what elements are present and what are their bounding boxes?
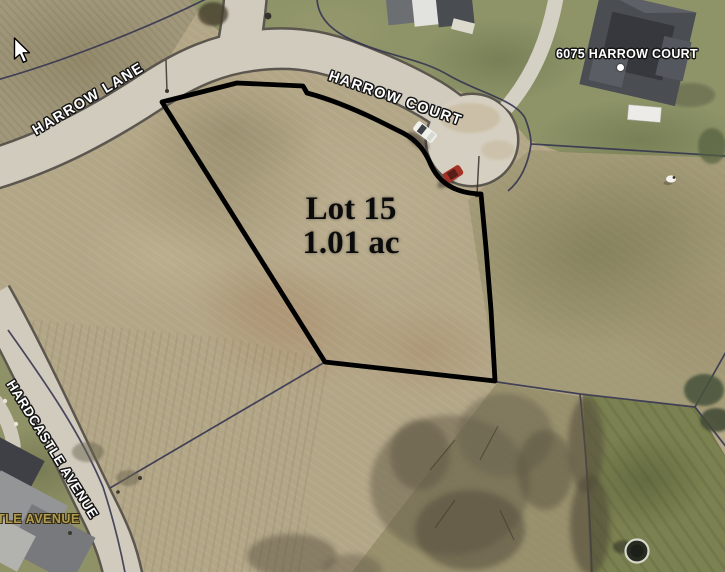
map-canvas[interactable]: HARROW LANE HARROW COURT HARDCASTLE AVEN… [0, 0, 725, 572]
address-marker-dot [617, 64, 624, 71]
bird [664, 175, 677, 185]
lot-area: 1.01 ac [251, 226, 451, 260]
cursor-icon [13, 37, 35, 65]
trampoline [613, 540, 649, 563]
road-north-branch [236, 0, 246, 62]
lot-name: Lot 15 [251, 192, 451, 226]
trailer-6075 [627, 105, 661, 123]
house-6075 [579, 0, 715, 122]
street-label-avenue-partial: TLE AVENUE [0, 512, 80, 526]
lot-15-label: Lot 15 1.01 ac [251, 192, 451, 260]
parcel-line-southwest [110, 362, 325, 488]
driveway-6075 [506, 0, 557, 108]
house-top-center [384, 0, 475, 34]
address-label-6075: 6075 HARROW COURT [556, 47, 698, 61]
